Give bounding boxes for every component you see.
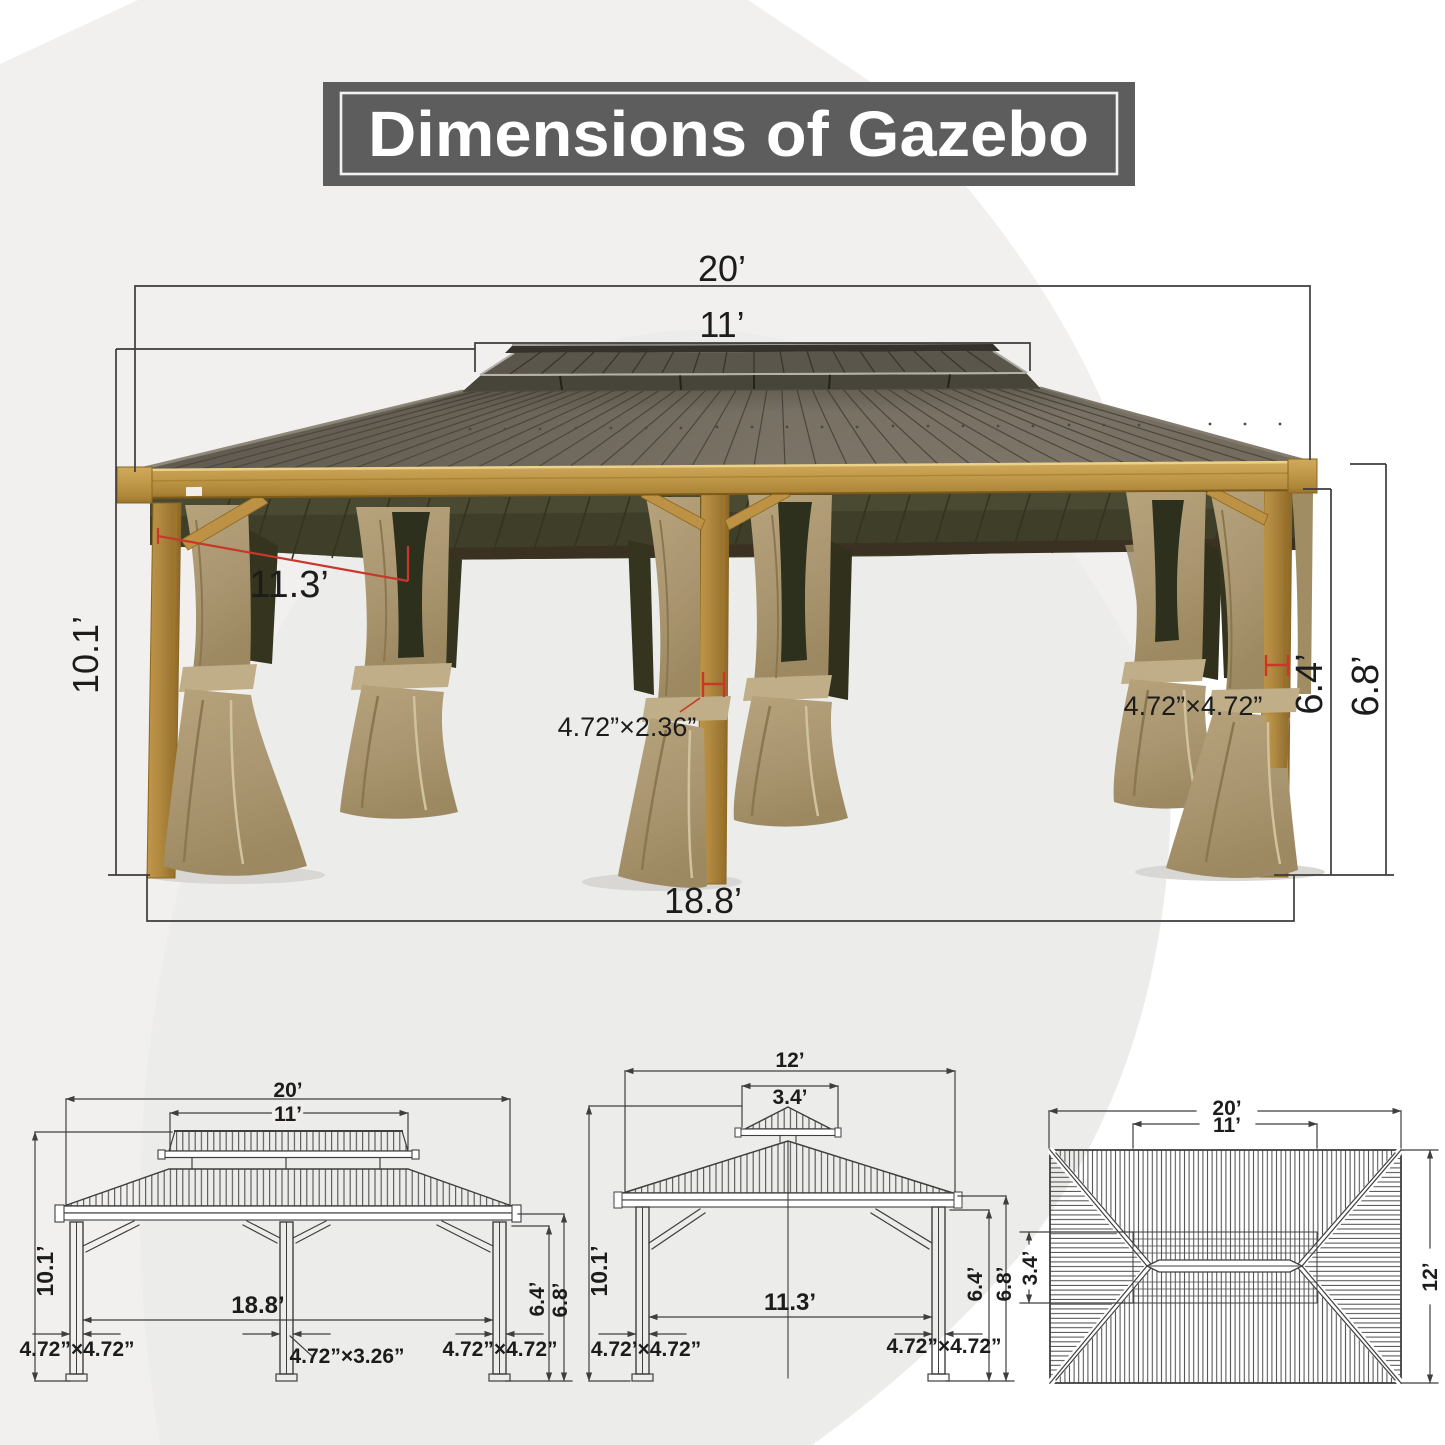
svg-text:4.72”×4.72”: 4.72”×4.72” <box>442 1338 557 1361</box>
svg-text:6.4’: 6.4’ <box>1289 653 1331 714</box>
svg-text:11.3’: 11.3’ <box>764 1289 816 1316</box>
svg-text:11’: 11’ <box>1213 1114 1241 1137</box>
svg-text:4.72”×3.26”: 4.72”×3.26” <box>289 1345 404 1368</box>
svg-text:10.1’: 10.1’ <box>586 1245 612 1296</box>
svg-text:4.72”×4.72”: 4.72”×4.72” <box>1124 691 1263 721</box>
svg-text:12’: 12’ <box>775 1049 804 1072</box>
svg-text:18.8’: 18.8’ <box>664 880 742 921</box>
svg-text:6.4’: 6.4’ <box>964 1266 987 1301</box>
svg-text:10.1’: 10.1’ <box>65 616 106 694</box>
svg-text:20’: 20’ <box>273 1079 302 1102</box>
svg-text:11’: 11’ <box>699 304 744 345</box>
svg-text:11.3’: 11.3’ <box>249 564 329 606</box>
svg-text:10.1’: 10.1’ <box>32 1245 58 1296</box>
svg-text:6.4’: 6.4’ <box>526 1281 549 1316</box>
svg-text:Dimensions of Gazebo: Dimensions of Gazebo <box>368 98 1089 170</box>
svg-text:12’: 12’ <box>1419 1262 1442 1291</box>
svg-text:11’: 11’ <box>274 1103 302 1126</box>
svg-text:4.72”×2.36”: 4.72”×2.36” <box>558 712 697 742</box>
svg-text:18.8’: 18.8’ <box>231 1292 284 1319</box>
svg-text:3.4’: 3.4’ <box>1019 1250 1042 1285</box>
svg-text:4.72”×4.72”: 4.72”×4.72” <box>886 1335 1001 1358</box>
svg-text:4.72”×4.72”: 4.72”×4.72” <box>19 1338 134 1361</box>
svg-text:6.8’: 6.8’ <box>993 1266 1016 1301</box>
svg-text:3.4’: 3.4’ <box>772 1086 807 1109</box>
svg-text:6.8’: 6.8’ <box>1345 655 1387 716</box>
svg-text:4.72’×4.72”: 4.72’×4.72” <box>591 1338 701 1361</box>
svg-text:6.8’: 6.8’ <box>549 1282 572 1317</box>
svg-text:20’: 20’ <box>698 248 746 289</box>
